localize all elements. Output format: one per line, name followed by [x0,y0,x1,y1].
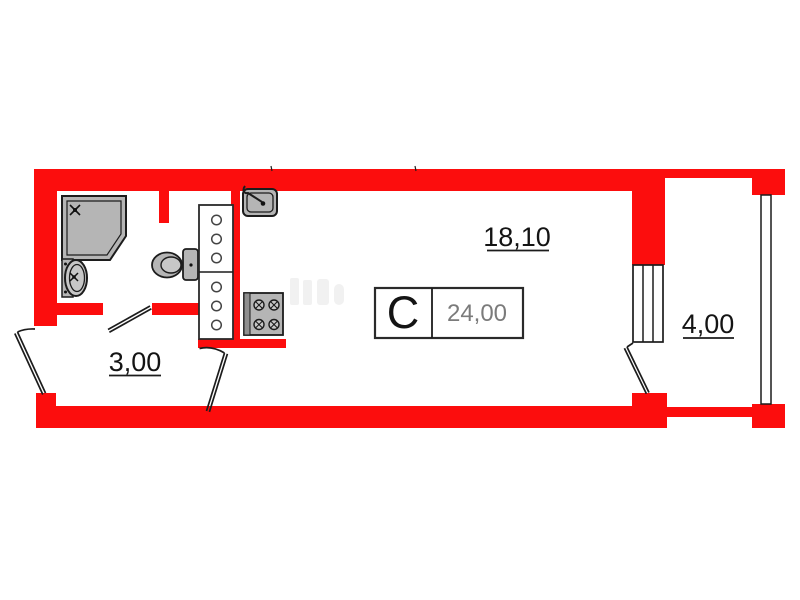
utility-shaft [199,205,233,339]
unit-type-letter: С [387,287,420,338]
wall-top-main [34,169,632,191]
wall-pillar-top-right [632,169,665,265]
wall-bathroom-bottom-left [57,303,103,315]
floor-plan: 18,10 3,00 4,00 С 24,00 [0,0,800,600]
unit-info-box: С 24,00 [375,287,523,338]
stove-edge-strip [244,293,250,335]
basin-fitting-dot [64,263,67,266]
living-room-area-label: 18,10 [483,222,551,252]
wall-balcony-bottom [667,407,752,417]
wall-block-top-right [752,169,785,195]
wall-block-bottom-left [36,393,56,407]
wall-block-bottom-right-end [752,404,785,428]
total-area-value: 24,00 [447,300,507,327]
toilet-bowl-inner [161,257,181,273]
faucet-dot [261,201,266,206]
toilet-button [189,263,192,266]
wall-bathroom-stub [159,191,169,223]
wall-pillar-bottom-right [632,393,667,428]
wall-balcony-top [665,169,752,178]
wall-left [34,169,57,326]
hallway-area-label: 3,00 [109,347,162,377]
wall-bathroom-bottom-right [152,303,199,315]
wall-kitchen-return [198,339,286,348]
wall-bottom-main [36,406,667,428]
balcony-area-label: 4,00 [682,309,735,339]
basin-fitting-dot [64,291,67,294]
